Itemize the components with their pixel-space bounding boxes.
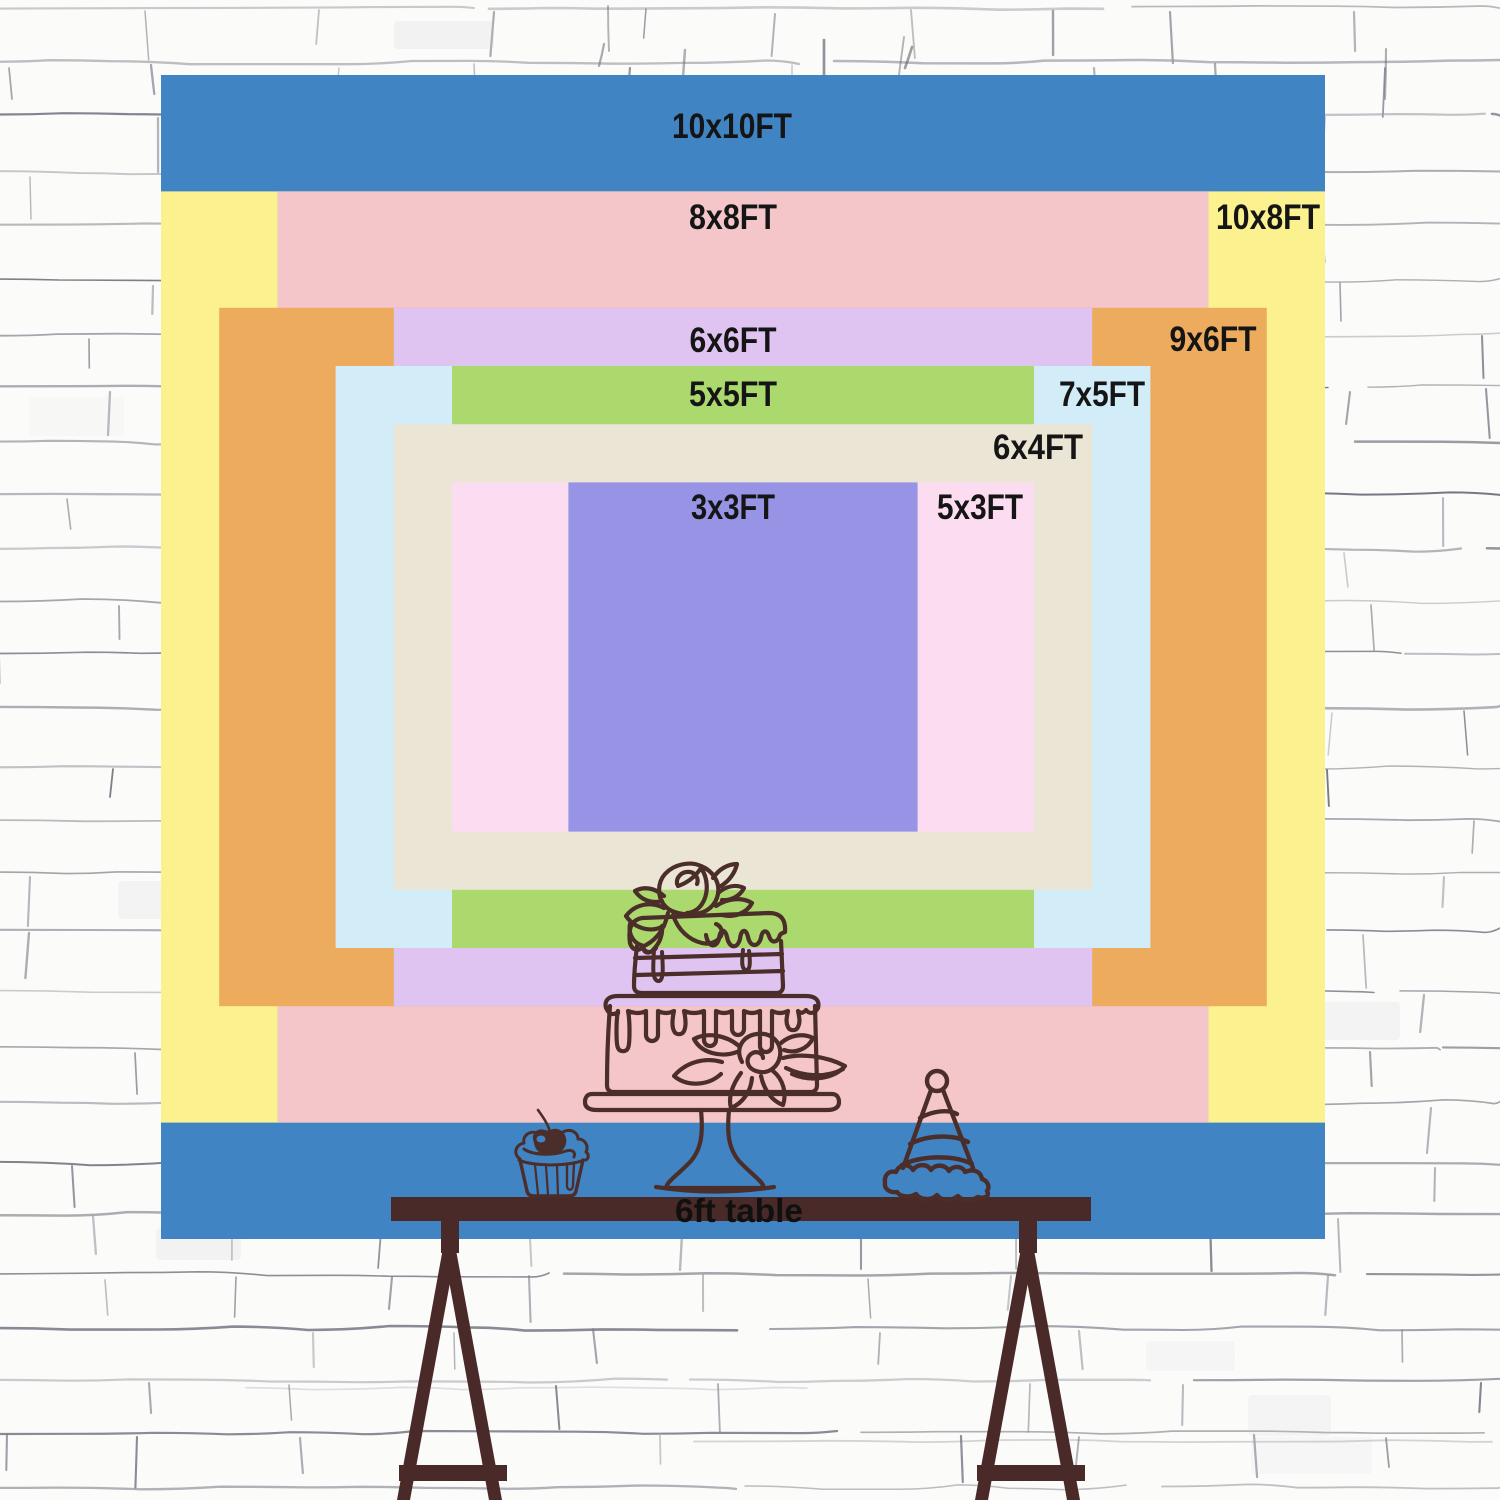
svg-text:10x8FT: 10x8FT <box>1216 198 1320 237</box>
svg-text:5x3FT: 5x3FT <box>937 488 1023 527</box>
svg-text:6x6FT: 6x6FT <box>690 321 777 360</box>
svg-text:10x10FT: 10x10FT <box>672 107 792 146</box>
svg-text:8x8FT: 8x8FT <box>689 198 777 237</box>
svg-text:9x6FT: 9x6FT <box>1170 320 1257 359</box>
svg-text:6ft table: 6ft table <box>675 1192 803 1229</box>
svg-text:7x5FT: 7x5FT <box>1059 375 1145 414</box>
svg-text:5x5FT: 5x5FT <box>689 375 777 414</box>
svg-text:6x4FT: 6x4FT <box>993 428 1083 467</box>
svg-text:3x3FT: 3x3FT <box>691 488 775 527</box>
